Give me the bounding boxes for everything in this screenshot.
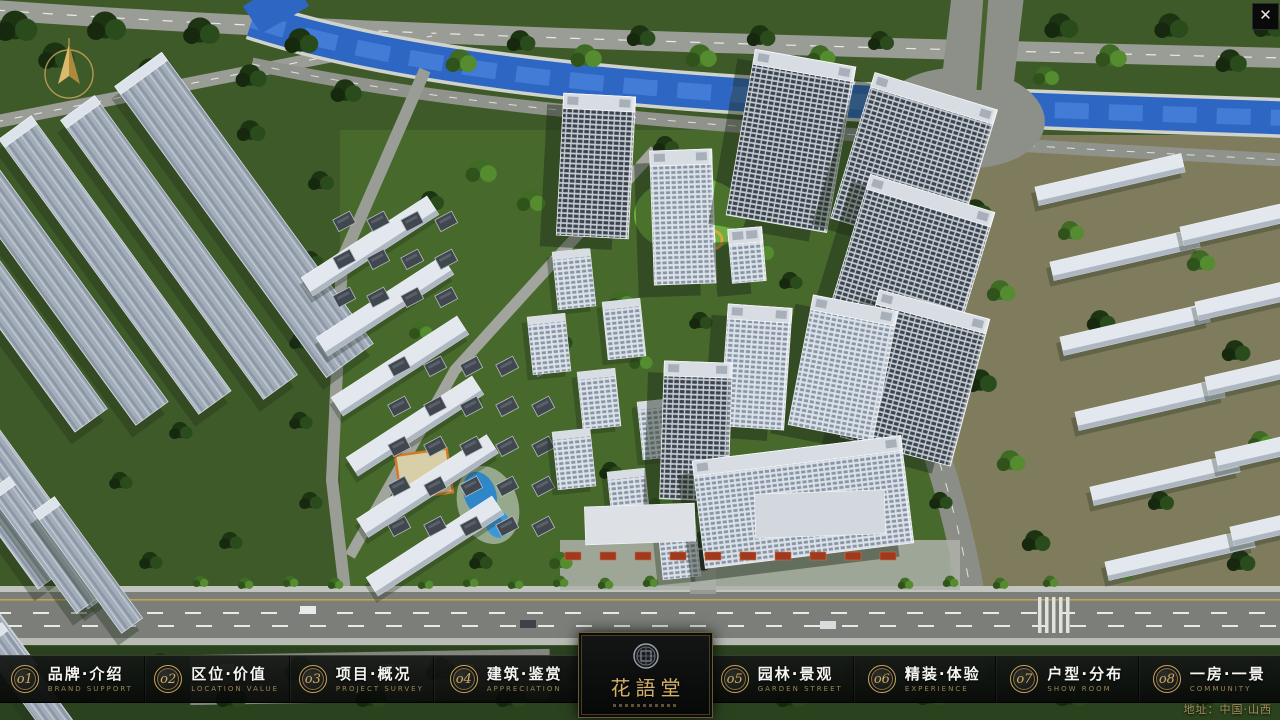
nav-item-o1[interactable]: o1 品牌·介绍 BRAND SUPPORT: [0, 656, 144, 702]
project-logo-title: 花語堂: [606, 672, 686, 701]
navbar-left: o1 品牌·介绍 BRAND SUPPORT o2 区位·价值 LOCATION…: [0, 655, 578, 703]
nav-item-subtitle: PROJECT SURVEY: [336, 685, 424, 693]
nav-item-label: 精装·体验: [905, 666, 981, 682]
nav-item-o8[interactable]: o8 一房·一景 COMMUNITY: [1138, 656, 1280, 702]
nav-item-subtitle: BRAND SUPPORT: [48, 685, 133, 693]
aerial-render: [0, 0, 1280, 720]
nav-item-label: 区位·价值: [191, 666, 267, 682]
logo-subtitle-rule: [613, 704, 679, 707]
close-button[interactable]: ✕: [1252, 3, 1279, 30]
nav-item-label: 项目·概况: [336, 666, 412, 682]
nav-item-o6[interactable]: o6 精装·体验 EXPERIENCE: [853, 656, 996, 702]
navbar-right: o5 园林·景观 GARDEN STREET o6 精装·体验 EXPERIEN…: [711, 655, 1280, 703]
nav-item-number-badge: o8: [1153, 665, 1181, 693]
nav-item-subtitle: EXPERIENCE: [905, 685, 969, 693]
nav-item-label: 一房·一景: [1190, 666, 1266, 682]
nav-item-number-badge: o1: [11, 665, 39, 693]
nav-item-label: 园林·景观: [758, 666, 834, 682]
nav-item-label: 建筑·鉴赏: [487, 666, 563, 682]
project-address: 地址：中国·山西: [1184, 701, 1273, 717]
nav-item-o2[interactable]: o2 区位·价值 LOCATION VALUE: [144, 656, 289, 702]
project-logo-panel[interactable]: 花語堂: [578, 632, 713, 718]
nav-item-subtitle: COMMUNITY: [1190, 685, 1251, 693]
map-viewport[interactable]: ✕ o1 品牌·介绍 BRAND SUPPORT o2 区位·价值 LOCATI…: [0, 0, 1280, 720]
nav-item-number-badge: o2: [154, 665, 182, 693]
nav-item-subtitle: SHOW ROOM: [1047, 685, 1111, 693]
nav-item-o4[interactable]: o4 建筑·鉴赏 APPRECIATION: [433, 656, 578, 702]
nav-item-o7[interactable]: o7 户型·分布 SHOW ROOM: [995, 656, 1138, 702]
nav-item-subtitle: LOCATION VALUE: [191, 685, 279, 693]
nav-item-number-badge: o5: [721, 665, 749, 693]
nav-item-number-badge: o3: [299, 665, 327, 693]
nav-item-number-badge: o7: [1010, 665, 1038, 693]
nav-item-o5[interactable]: o5 园林·景观 GARDEN STREET: [711, 656, 853, 702]
nav-item-o3[interactable]: o3 项目·概况 PROJECT SURVEY: [289, 656, 434, 702]
nav-item-number-badge: o4: [450, 665, 478, 693]
nav-item-subtitle: APPRECIATION: [487, 685, 562, 693]
nav-item-label: 户型·分布: [1047, 666, 1123, 682]
nav-item-subtitle: GARDEN STREET: [758, 685, 843, 693]
nav-item-label: 品牌·介绍: [48, 666, 124, 682]
seal-emblem-icon: [633, 643, 659, 669]
compass-north-icon: [38, 36, 100, 102]
nav-item-number-badge: o6: [868, 665, 896, 693]
